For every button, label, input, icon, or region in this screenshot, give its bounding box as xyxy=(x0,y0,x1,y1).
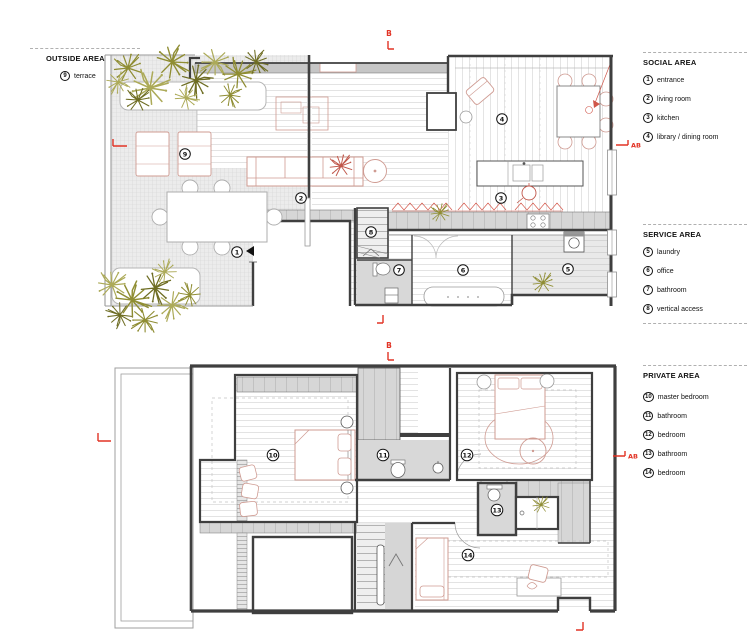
toilet-bath7 xyxy=(373,263,390,276)
kitchen-counter xyxy=(388,212,611,230)
legend-label-office: office xyxy=(657,268,674,275)
legend-label-bathroom11: bathroom xyxy=(657,413,687,420)
legend-label-entrance: entrance xyxy=(657,77,684,84)
svg-text:1: 1 xyxy=(235,248,240,256)
toilet-bath11 xyxy=(391,463,405,478)
sink xyxy=(433,463,443,473)
svg-text:AB: AB xyxy=(631,142,641,150)
legend-divider xyxy=(643,52,747,53)
lower-stairs xyxy=(357,523,411,610)
faucet xyxy=(523,162,526,165)
floor-plan-drawing: 9 2 1 4 3 8 7 6 5 xyxy=(0,0,750,643)
legend-label-living-room: living room xyxy=(657,96,691,103)
legend-label-laundry: laundry xyxy=(657,249,680,256)
legend-num-2: 2 xyxy=(643,94,653,104)
tv-console xyxy=(320,63,356,72)
legend-label-bedroom14: bedroom xyxy=(658,470,686,477)
legend-item-kitchen: 3 kitchen xyxy=(643,113,747,123)
legend-num-7: 7 xyxy=(643,285,653,295)
legend-divider xyxy=(643,323,747,324)
legend-title-service: SERVICE AREA xyxy=(643,230,747,239)
master-closet-band xyxy=(237,377,357,392)
lower-floor-plan: 10 11 12 13 14 xyxy=(115,366,616,628)
room-label-library: 4 xyxy=(497,114,508,125)
section-marker-ab-upper: AB xyxy=(616,140,641,150)
room-label-office: 6 xyxy=(458,265,469,276)
legend-item-vertical-access: 8 vertical access xyxy=(643,304,747,314)
legend-label-bathroom7: bathroom xyxy=(657,287,687,294)
svg-text:6: 6 xyxy=(461,266,466,274)
legend-label-bathroom13: bathroom xyxy=(658,451,688,458)
section-corner-lower-left xyxy=(98,433,111,441)
svg-text:3: 3 xyxy=(499,194,504,202)
bedside-table xyxy=(341,482,353,494)
svg-text:5: 5 xyxy=(566,265,571,273)
room-label-entrance: 1 xyxy=(232,247,243,258)
room-label-living: 2 xyxy=(296,193,307,204)
room-label-bath7: 7 xyxy=(394,265,405,276)
legend-label-master-bedroom: master bedroom xyxy=(658,394,709,401)
legend-num-3: 3 xyxy=(643,113,653,123)
legend-divider xyxy=(643,365,747,366)
legend-num-5: 5 xyxy=(643,247,653,257)
toilet-bath13 xyxy=(488,489,500,501)
legend-item-entrance: 1 entrance xyxy=(643,75,747,85)
svg-text:B: B xyxy=(386,341,392,350)
kitchen-island xyxy=(477,161,583,186)
legend-num-13: 13 xyxy=(643,449,654,459)
room-label-bed14: 14 xyxy=(462,549,474,561)
section-bracket-mid-top xyxy=(377,315,383,323)
legend-divider xyxy=(30,48,140,49)
section-marker-b-mid: B xyxy=(386,341,394,360)
washer-dryer-stack xyxy=(385,288,398,303)
svg-text:B: B xyxy=(386,29,392,38)
svg-text:7: 7 xyxy=(397,266,402,274)
legend-private-area: PRIVATE AREA 10 master bedroom 11 bathro… xyxy=(643,365,747,487)
legend-label-kitchen: kitchen xyxy=(657,115,679,122)
stool xyxy=(477,375,491,389)
legend-item-bathroom11: 11 bathroom xyxy=(643,411,747,421)
side-table xyxy=(460,111,472,123)
floor-plan-sheet: 9 2 1 4 3 8 7 6 5 xyxy=(0,0,750,643)
legend-item-terrace: 9 terrace xyxy=(30,71,140,81)
legend-item-master-bedroom: 10 master bedroom xyxy=(643,392,747,402)
legend-outside-area: OUTSIDE AREA 9 terrace xyxy=(30,48,140,90)
legend-item-office: 6 office xyxy=(643,266,747,276)
legend-title-social: SOCIAL AREA xyxy=(643,58,747,67)
room-label-laundry: 5 xyxy=(563,264,574,275)
stove xyxy=(527,214,549,229)
legend-item-bedroom12: 12 bedroom xyxy=(643,430,747,440)
room-label-bath11: 11 xyxy=(377,449,389,461)
wardrobe-right xyxy=(558,483,590,543)
svg-text:2: 2 xyxy=(299,194,304,202)
svg-text:8: 8 xyxy=(369,228,374,236)
section-marker-b-top: B xyxy=(386,29,394,49)
room-label-kitchen: 3 xyxy=(496,193,507,204)
section-marker-ab-lower: AB xyxy=(613,451,638,461)
legend-num-14: 14 xyxy=(643,468,654,478)
upper-floor-plan: 9 2 1 4 3 8 7 6 5 xyxy=(96,44,617,337)
legend-label-terrace: terrace xyxy=(74,73,96,80)
svg-text:AB: AB xyxy=(628,453,638,461)
legend-num-6: 6 xyxy=(643,266,653,276)
master-south-band xyxy=(200,522,357,533)
legend-label-library-dining: library / dining room xyxy=(657,134,718,141)
legend-num-11: 11 xyxy=(643,411,653,421)
lower-terrace-outline xyxy=(115,368,193,628)
section-bracket-bottom xyxy=(576,622,583,630)
office-desk xyxy=(424,287,504,306)
room-label-stairs: 8 xyxy=(366,227,377,238)
svg-text:14: 14 xyxy=(463,551,473,559)
legend-item-living-room: 2 living room xyxy=(643,94,747,104)
laundry-floor xyxy=(512,235,611,295)
legend-label-bedroom12: bedroom xyxy=(658,432,686,439)
legend-num-12: 12 xyxy=(643,430,654,440)
svg-text:12: 12 xyxy=(462,451,471,459)
lounge-chair-round xyxy=(364,160,387,183)
svg-text:13: 13 xyxy=(492,506,501,514)
svg-text:9: 9 xyxy=(183,150,188,158)
legend-item-library-dining: 4 library / dining room xyxy=(643,132,747,142)
legend-social-area: SOCIAL AREA 1 entrance 2 living room 3 k… xyxy=(643,52,747,151)
legend-num-1: 1 xyxy=(643,75,653,85)
room-label-terrace: 9 xyxy=(180,149,191,160)
room-label-bed12: 12 xyxy=(461,449,473,461)
legend-divider xyxy=(643,224,747,225)
svg-text:4: 4 xyxy=(500,115,505,123)
legend-item-laundry: 5 laundry xyxy=(643,247,747,257)
legend-num-10: 10 xyxy=(643,392,654,402)
legend-service-area: SERVICE AREA 5 laundry 6 office 7 bathro… xyxy=(643,224,747,329)
bedside-table xyxy=(341,416,353,428)
legend-title-outside: OUTSIDE AREA xyxy=(30,54,140,63)
room-label-bath13: 13 xyxy=(491,504,503,516)
room-label-master: 10 xyxy=(267,449,279,461)
legend-num-4: 4 xyxy=(643,132,653,142)
legend-num-9: 9 xyxy=(60,71,70,81)
legend-item-bathroom13: 13 bathroom xyxy=(643,449,747,459)
island-sink xyxy=(513,165,530,181)
closet-strip-floor xyxy=(400,368,418,435)
wardrobe-column xyxy=(358,368,400,440)
svg-text:11: 11 xyxy=(378,451,388,459)
svg-text:10: 10 xyxy=(268,451,278,459)
louver-strip-b xyxy=(237,533,247,611)
legend-num-8: 8 xyxy=(643,304,653,314)
legend-label-vertical-access: vertical access xyxy=(657,306,703,313)
void-open-below xyxy=(253,537,352,613)
stool xyxy=(540,374,554,388)
legend-title-private: PRIVATE AREA xyxy=(643,371,747,380)
legend-item-bedroom14: 14 bedroom xyxy=(643,468,747,478)
floor-cushions xyxy=(239,464,260,517)
legend-item-bathroom7: 7 bathroom xyxy=(643,285,747,295)
